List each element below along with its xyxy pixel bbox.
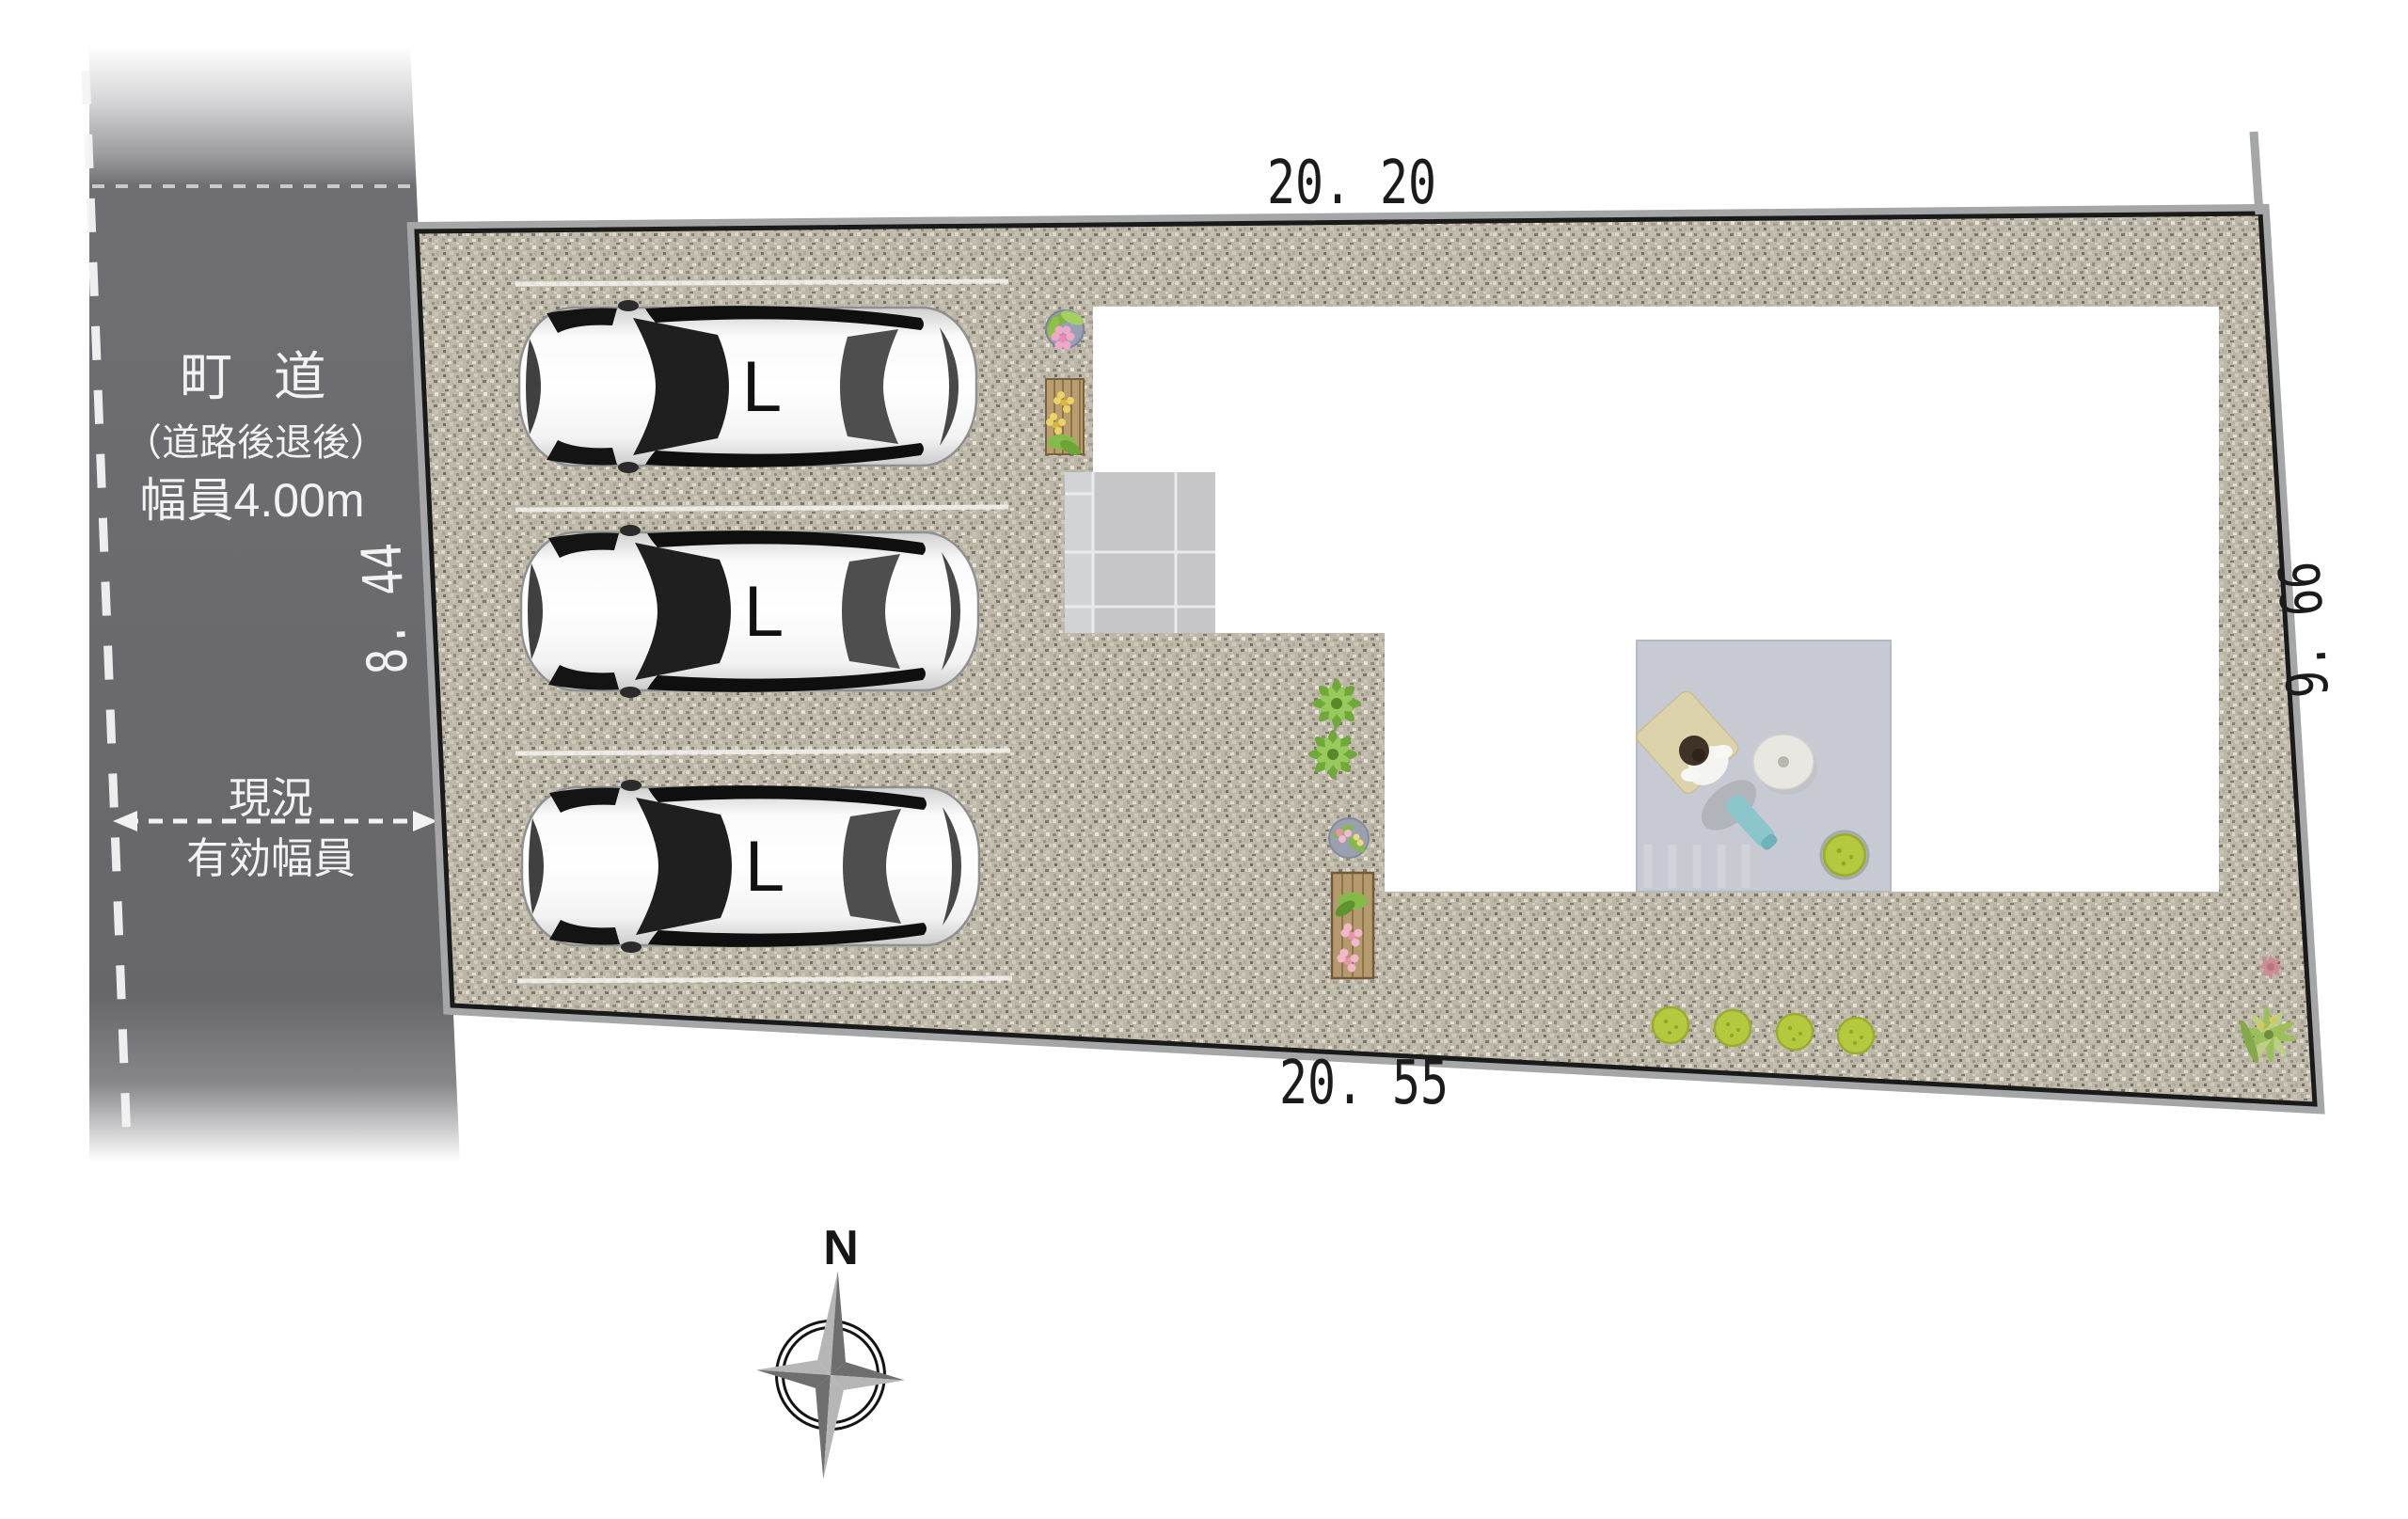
dimension-left: 8. 44 [349,541,420,675]
corner-tick [2254,132,2259,214]
road: 町 道 （道路後退後） 幅員4.00m 8. 44 現況 有効幅員 [86,45,460,1162]
entrance-plants [1045,308,1085,458]
potted-bush [1821,831,1868,878]
parked-cars: L L L [519,300,979,953]
car-2: L [521,525,978,698]
road-width-label: 幅員4.00m [140,474,365,527]
road-setback-note: （道路後退後） [124,422,388,464]
effective-width-label: 有効幅員 [186,834,356,882]
pink-starburst [2258,955,2283,979]
road-name-label: 町 道 [180,347,340,406]
stall-label-1: L [742,347,782,427]
wood-planter [1046,379,1084,458]
dimension-bottom: 20. 55 [1279,1049,1449,1118]
person-head [1679,736,1709,766]
north-label: N [823,1221,859,1275]
stall-label-2: L [744,572,784,652]
wood-planter-2 [1332,873,1373,978]
entrance-porch [1065,472,1215,633]
terrace [1634,641,1891,892]
car-3: L [522,780,979,953]
dimension-top: 20. 20 [1267,149,1436,218]
site-plan-canvas: 町 道 （道路後退後） 幅員4.00m 8. 44 現況 有効幅員 [0,0,2408,1519]
flower-pot-2 [1329,818,1369,858]
current-status-label: 現況 [229,774,313,822]
car-1: L [519,300,976,473]
stall-label-3: L [745,827,784,907]
dimension-right: 9. 66 [2267,560,2342,701]
